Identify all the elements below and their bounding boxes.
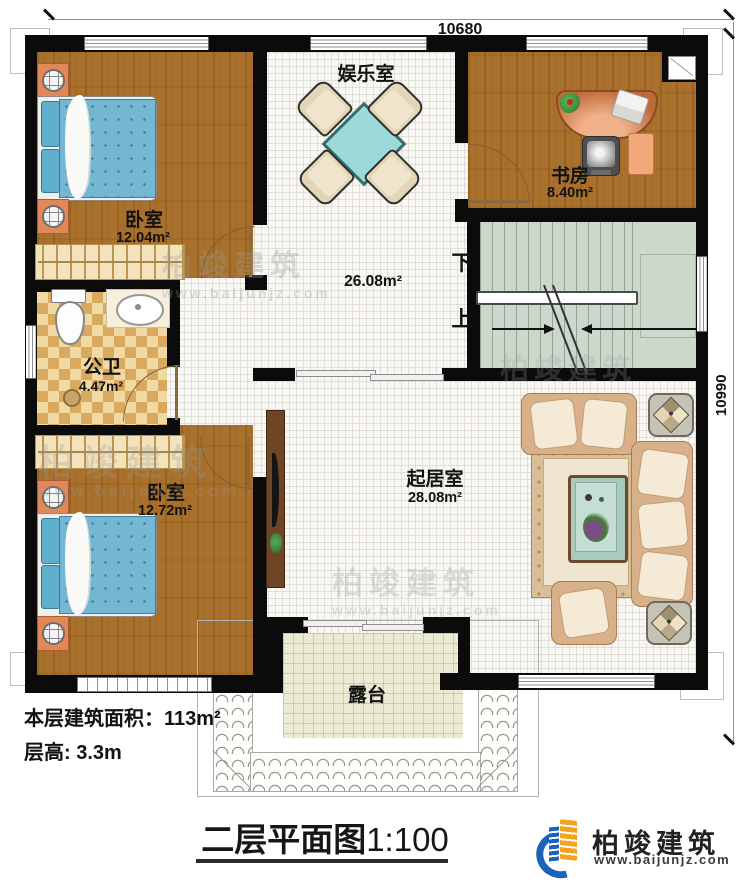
sofa-cushion [637,500,690,551]
window [26,325,36,379]
shaft-diagonal [670,58,693,76]
table-lamp-icon [653,397,690,434]
flower-decor [583,512,609,542]
room-area-bedroom2: 12.72m² [125,504,205,520]
sliding-door [303,620,367,627]
brand-logo-icon [536,818,588,868]
tv-cabinet [266,410,285,588]
sliding-door [296,370,376,377]
room-area-bathroom: 4.47m² [61,379,141,394]
window [518,675,655,688]
sofa-cushion [636,550,689,602]
armchair [551,581,617,645]
wall [455,52,468,143]
wall [442,368,700,381]
wardrobe-rod [38,261,182,263]
stair-direction-line [592,328,696,330]
pillow [41,565,60,609]
room-area-living: 28.08m² [393,491,477,507]
corner-shaft [668,56,696,80]
plan-title-text: 二层平面图 [201,821,366,858]
nightstand [37,63,69,98]
dimension-line-right [733,22,734,744]
room-label-living: 起居室 [395,470,475,491]
sliding-door [370,374,444,381]
roof-tiles-right [478,688,518,792]
table-decor [599,497,604,502]
window [310,37,427,50]
roof-tiles-left [213,688,253,792]
desk-return [628,133,654,175]
wall [253,477,267,675]
sofa-cushion [636,448,690,500]
door-leaf [175,365,178,420]
wall [253,52,267,225]
arrow-left-icon [581,324,592,334]
plan-title-scale: 1:100 [366,821,449,858]
wardrobe [35,435,185,469]
door-leaf [470,200,528,203]
nightstand [37,199,69,234]
wall [253,368,295,381]
wall [455,199,468,208]
logo-tower-orange [560,819,577,861]
tv-icon [272,453,279,527]
stair-direction-line [492,328,544,330]
nightstand [37,616,69,651]
arrow-right-icon [544,324,555,334]
plant-flower [567,99,573,105]
wall [455,208,700,222]
window [84,37,209,50]
stair-treads-upper [480,222,632,293]
door-leaf [249,226,252,277]
plan-title: 二层平面图1:100 [190,813,460,861]
room-area-bedroom1: 12.04m² [103,231,183,247]
sink-counter [106,289,170,328]
sofa-cushion [558,587,611,640]
bed [37,513,157,617]
logo-tower-blue [549,826,559,863]
dimension-line-top [48,19,734,20]
room-area-hall: 26.08m² [323,273,423,290]
floor-plan-canvas: 10680 10990 [0,0,750,885]
brand-url: www.baijunjz.com [594,852,750,867]
pillow [41,101,60,147]
pillow [41,149,60,193]
bed [37,96,157,201]
corner-table [646,601,692,645]
stair-label-down: 下 [450,252,474,275]
floor-area-text: 本层建筑面积：113m² [24,708,324,730]
table-decor [585,494,592,501]
floor-height-text: 层高: 3.3m [24,742,324,764]
lamp-icon [42,486,65,509]
wall [458,617,470,679]
window [526,37,648,50]
sofa-two-seat [521,393,637,455]
sliding-door [362,624,424,631]
stair-label-up: 上 [450,308,474,331]
room-label-bedroom1: 卧室 [104,211,184,232]
dimension-label-right: 10990 [714,365,731,425]
sofa-cushion [529,397,579,450]
monitor-screen [587,141,615,167]
nightstand [37,480,69,515]
lamp-icon [42,69,65,92]
door-leaf [247,437,250,487]
sofa-three-seat [631,441,693,607]
title-underline [196,859,448,863]
pillow [41,518,60,564]
room-label-entertainment: 娱乐室 [316,65,416,86]
room-area-study: 8.40m² [530,186,610,202]
lamp-icon [42,622,65,645]
room-label-terrace: 露台 [327,686,407,707]
sink [116,294,164,326]
wardrobe [35,244,185,280]
sofa-cushion [580,398,629,450]
room-label-bathroom: 公卫 [62,358,142,379]
table-lamp-icon [651,605,688,642]
room-label-bedroom2: 卧室 [126,484,206,505]
coffee-table [568,475,628,563]
stair-treads-lower [480,300,632,368]
lamp-icon [42,205,65,228]
window [77,677,212,692]
wardrobe-rod [38,451,182,453]
corner-table [648,393,694,437]
stair-opening-outline [640,254,696,338]
window [697,256,707,332]
faucet-icon [135,304,141,310]
plant-icon [270,533,282,553]
